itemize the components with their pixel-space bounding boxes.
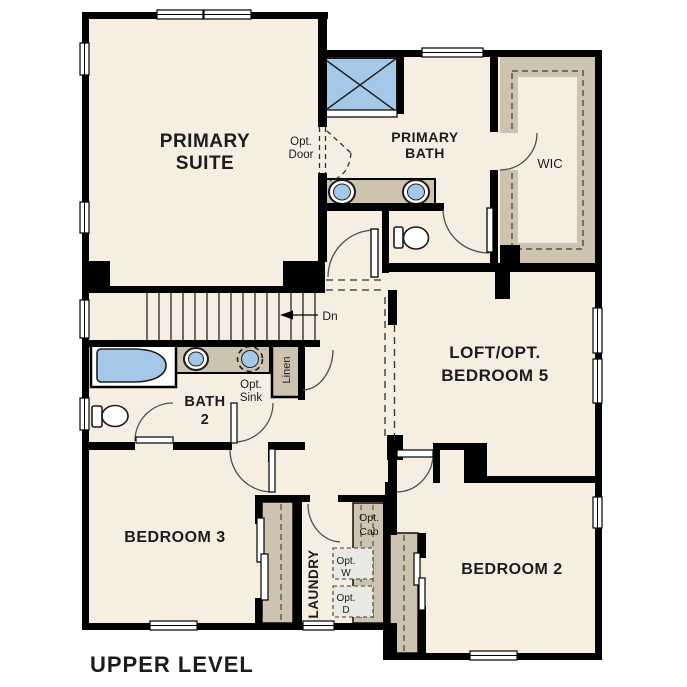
- primary-bath-label-line2: BATH: [405, 145, 445, 161]
- opt-cab-label-line1: Opt.: [359, 512, 379, 524]
- bedroom2-label: BEDROOM 2: [461, 561, 562, 578]
- window: [80, 398, 89, 430]
- window: [80, 202, 89, 233]
- opt-door-label-line2: Door: [289, 149, 314, 161]
- window: [593, 497, 602, 528]
- bath2-toilet: [92, 406, 128, 428]
- opt-dryer-label-line2: D: [342, 605, 349, 616]
- window: [303, 621, 334, 630]
- primary-toilet: [394, 227, 429, 249]
- window: [470, 651, 517, 660]
- primary-bath-label-line1: PRIMARY: [391, 129, 459, 145]
- primary-suite-label-line2: SUITE: [176, 153, 234, 174]
- opt-dryer-label-line1: Opt.: [337, 593, 356, 604]
- floorplan-drawing: PRIMARY SUITE PRIMARY BATH Opt. Door WIC…: [0, 0, 687, 687]
- opt-washer-label-line1: Opt.: [337, 556, 356, 567]
- shower: [323, 58, 397, 117]
- laundry-label: LAUNDRY: [306, 550, 321, 619]
- opt-washer-label-line2: W: [341, 568, 351, 579]
- primary-sink-right: [403, 180, 429, 204]
- loft-label-line2: BEDROOM 5: [441, 366, 548, 385]
- window: [593, 308, 602, 353]
- floorplan-upper-level: PRIMARY SUITE PRIMARY BATH Opt. Door WIC…: [0, 0, 687, 687]
- window: [422, 48, 483, 57]
- primary-sink-left: [329, 180, 355, 204]
- bath2-label-line1: BATH: [184, 394, 225, 410]
- linen-label: Linen: [281, 357, 293, 384]
- window: [157, 10, 203, 19]
- opt-cab-label-line2: Cab: [359, 526, 378, 538]
- stair-down-label: Dn: [322, 309, 337, 323]
- wic-label: WIC: [537, 156, 562, 171]
- window: [80, 300, 89, 338]
- bathtub: [91, 344, 176, 387]
- bath2-label-line2: 2: [201, 412, 210, 428]
- opt-sink-label-line1: Opt.: [240, 379, 262, 391]
- bedroom3-label: BEDROOM 3: [124, 529, 225, 546]
- opt-sink-label-line2: Sink: [240, 392, 263, 404]
- primary-suite-label-line1: PRIMARY: [160, 131, 250, 152]
- opt-door-label-line1: Opt.: [290, 136, 312, 148]
- window: [593, 359, 602, 403]
- plan-title: UPPER LEVEL: [90, 652, 254, 677]
- window: [150, 621, 197, 630]
- loft-label-line1: LOFT/OPT.: [449, 343, 540, 362]
- window: [204, 10, 251, 19]
- window: [80, 43, 89, 75]
- bath2-sink: [184, 348, 208, 370]
